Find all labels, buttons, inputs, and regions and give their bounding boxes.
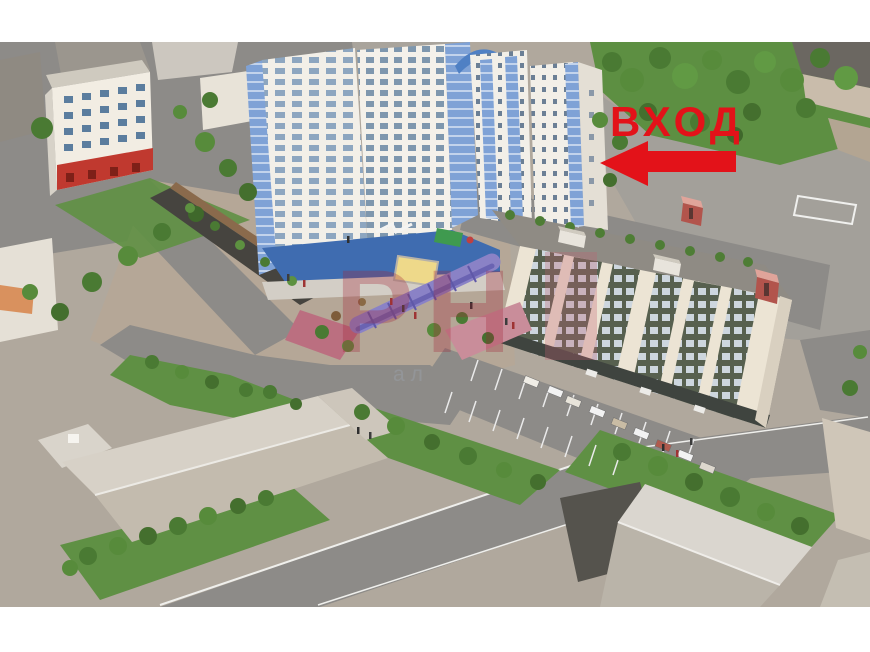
tower3-facade <box>470 50 532 226</box>
watermark-fragment <box>545 252 597 360</box>
watermark-letters: РН <box>335 246 523 378</box>
tower1-facade <box>262 48 368 268</box>
entrance-label: ВХОД <box>610 98 744 145</box>
tower2-facade <box>357 44 452 252</box>
letterbox-top <box>0 0 870 42</box>
letterbox-bottom <box>0 607 870 652</box>
rendered-scene: РН ал ВХОД <box>0 0 870 652</box>
watermark-subtext: ал <box>393 363 429 386</box>
play-equipment <box>467 237 474 244</box>
scene-svg: РН ал ВХОД <box>0 0 870 652</box>
